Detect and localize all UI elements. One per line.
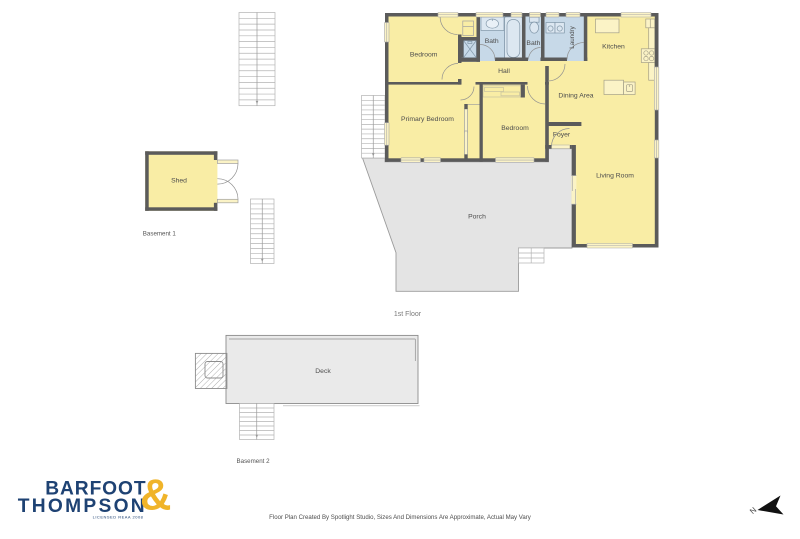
svg-text:LICENSED REAA 2008: LICENSED REAA 2008	[93, 514, 144, 519]
svg-text:Bath: Bath	[526, 40, 540, 47]
svg-text:&: &	[140, 472, 171, 520]
svg-text:1st Floor: 1st Floor	[394, 311, 422, 318]
svg-text:Primary Bedroom: Primary Bedroom	[401, 116, 454, 123]
svg-text:Basement 1: Basement 1	[143, 230, 177, 237]
svg-text:Bedroom: Bedroom	[410, 51, 438, 58]
svg-text:N: N	[748, 505, 758, 516]
svg-text:Foyer: Foyer	[553, 131, 571, 138]
svg-text:Bath: Bath	[485, 38, 499, 45]
svg-text:Floor Plan Created By Spotligh: Floor Plan Created By Spotlight Studio, …	[269, 514, 532, 521]
svg-text:Porch: Porch	[468, 213, 486, 220]
svg-text:Deck: Deck	[315, 368, 331, 375]
svg-text:Living Room: Living Room	[596, 172, 634, 179]
svg-text:Laundry: Laundry	[569, 25, 576, 48]
svg-text:Bedroom: Bedroom	[501, 125, 529, 132]
svg-text:Kitchen: Kitchen	[602, 43, 625, 50]
svg-text:Hall: Hall	[498, 68, 510, 75]
svg-text:Basement 2: Basement 2	[237, 458, 271, 465]
svg-text:Dining Area: Dining Area	[558, 92, 593, 99]
svg-text:Shed: Shed	[171, 177, 187, 184]
